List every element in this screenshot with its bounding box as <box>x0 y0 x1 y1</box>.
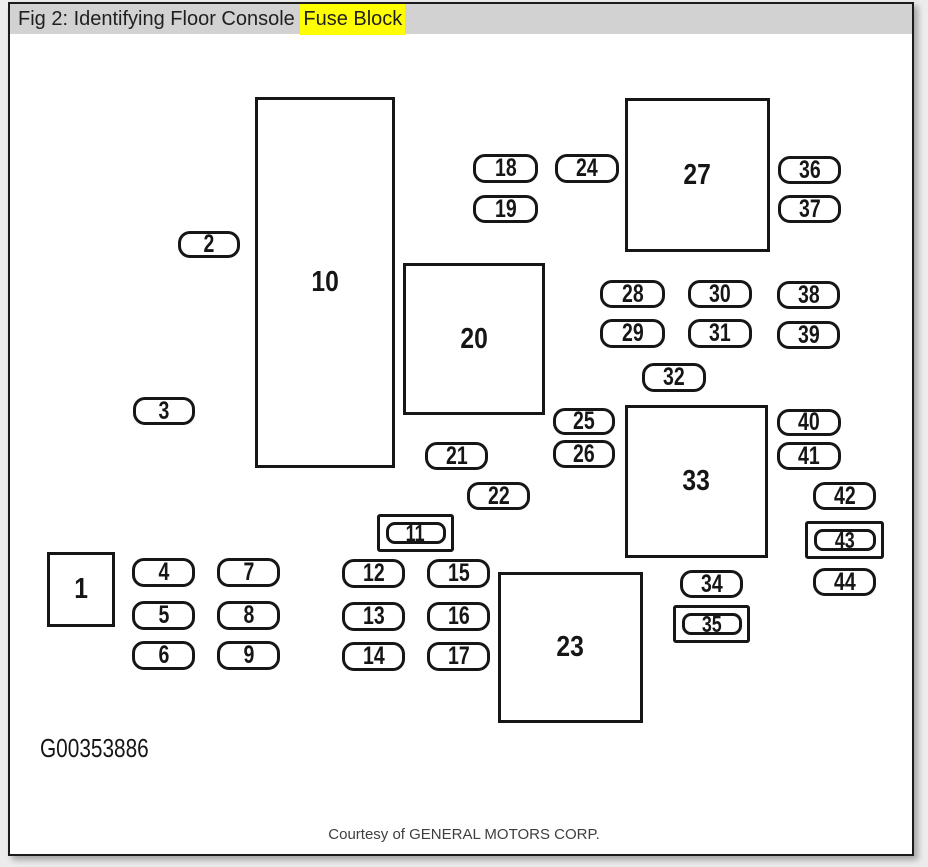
fuse-label: 19 <box>495 197 517 222</box>
fuse-8: 8 <box>217 601 280 630</box>
fuse-label: 17 <box>448 644 470 669</box>
fuse-3: 3 <box>133 397 195 425</box>
component-label: 20 <box>460 325 487 354</box>
fuse-label: 5 <box>158 603 169 628</box>
fuse-label: 4 <box>158 560 169 585</box>
fuse-34: 34 <box>680 570 743 598</box>
fuse-label: 18 <box>495 156 517 181</box>
component-block-10: 10 <box>255 97 395 468</box>
figure-code: G00353886 <box>40 733 149 764</box>
fuse-label: 13 <box>363 604 385 629</box>
fuse-15: 15 <box>427 559 490 588</box>
fuse-label: 14 <box>363 644 385 669</box>
fuse-38: 38 <box>777 281 840 309</box>
fuse-label: 9 <box>243 643 254 668</box>
courtesy-text: Courtesy of GENERAL MOTORS CORP. <box>0 826 928 843</box>
component-label: 1 <box>74 575 88 604</box>
fuse-29: 29 <box>600 319 665 348</box>
fuse-13: 13 <box>342 602 405 631</box>
fuse-11: 11 <box>386 522 446 544</box>
fuse-21: 21 <box>425 442 488 470</box>
fuse-label: 28 <box>622 282 644 307</box>
fuse-label: 8 <box>243 603 254 628</box>
component-block-23: 23 <box>498 572 643 723</box>
fuse-14: 14 <box>342 642 405 671</box>
component-label: 27 <box>684 161 711 190</box>
fuse-label: 44 <box>834 570 856 595</box>
fuse-28: 28 <box>600 280 665 308</box>
fuse-32: 32 <box>642 363 706 392</box>
component-block-27: 27 <box>625 98 770 252</box>
fuse-label: 39 <box>798 323 820 348</box>
fuse-label: 3 <box>159 399 170 424</box>
fuse-label: 40 <box>798 410 820 435</box>
fuse-22: 22 <box>467 482 530 510</box>
fuse-2: 2 <box>178 231 240 258</box>
figure-page: Fig 2: Identifying Floor Console Fuse Bl… <box>8 2 914 856</box>
fuse-label: 42 <box>834 484 856 509</box>
fuse-label: 24 <box>576 156 598 181</box>
fuse-44: 44 <box>813 568 876 596</box>
fuse-16: 16 <box>427 602 490 631</box>
fuse-label: 38 <box>798 283 820 308</box>
fuse-35: 35 <box>682 613 742 635</box>
fuse-label: 41 <box>798 444 820 469</box>
component-block-33: 33 <box>625 405 768 558</box>
fuse-6: 6 <box>132 641 195 670</box>
fuse-label: 31 <box>709 321 731 346</box>
fuse-41: 41 <box>777 442 841 470</box>
fuse-4: 4 <box>132 558 195 587</box>
fuse-label: 34 <box>701 572 723 597</box>
component-label: 10 <box>311 268 338 297</box>
fuse-label: 15 <box>448 561 470 586</box>
fuse-label: 12 <box>363 561 385 586</box>
fuse-label: 6 <box>158 643 169 668</box>
fuse-label: 2 <box>204 232 215 257</box>
fuse-19: 19 <box>473 195 538 223</box>
fuse-11-outer-box: 11 <box>377 514 454 552</box>
fuse-label: 30 <box>709 282 731 307</box>
fuse-label: 22 <box>488 484 510 509</box>
fuse-43-outer-box: 43 <box>805 521 884 559</box>
fuse-42: 42 <box>813 482 876 510</box>
fuse-label: 7 <box>243 560 254 585</box>
fuse-35-outer-box: 35 <box>673 605 750 643</box>
fuse-7: 7 <box>217 558 280 587</box>
fuse-label: 36 <box>799 158 821 183</box>
fuse-label: 26 <box>573 442 595 467</box>
fuse-label: 32 <box>663 365 685 390</box>
fuse-43: 43 <box>814 529 876 551</box>
fuse-25: 25 <box>553 408 615 435</box>
fuse-40: 40 <box>777 409 841 436</box>
fuse-label: 11 <box>406 522 425 545</box>
fuse-17: 17 <box>427 642 490 671</box>
fuse-26: 26 <box>553 440 615 468</box>
fuse-30: 30 <box>688 280 752 308</box>
fuse-label: 25 <box>573 409 595 434</box>
fuse-36: 36 <box>778 156 841 184</box>
fuse-9: 9 <box>217 641 280 670</box>
component-label: 23 <box>557 633 584 662</box>
component-label: 33 <box>683 467 710 496</box>
fuse-block-diagram: G00353886 Courtesy of GENERAL MOTORS COR… <box>0 0 928 867</box>
fuse-label: 29 <box>622 321 644 346</box>
fuse-label: 37 <box>799 197 821 222</box>
fuse-label: 43 <box>835 529 855 552</box>
component-block-20: 20 <box>403 263 545 415</box>
fuse-label: 35 <box>702 613 722 636</box>
fuse-12: 12 <box>342 559 405 588</box>
fuse-5: 5 <box>132 601 195 630</box>
fuse-24: 24 <box>555 154 619 183</box>
fuse-31: 31 <box>688 319 752 348</box>
fuse-37: 37 <box>778 195 841 223</box>
fuse-label: 21 <box>446 444 468 469</box>
fuse-label: 16 <box>448 604 470 629</box>
fuse-39: 39 <box>777 321 840 349</box>
fuse-18: 18 <box>473 154 538 183</box>
component-block-1: 1 <box>47 552 115 627</box>
